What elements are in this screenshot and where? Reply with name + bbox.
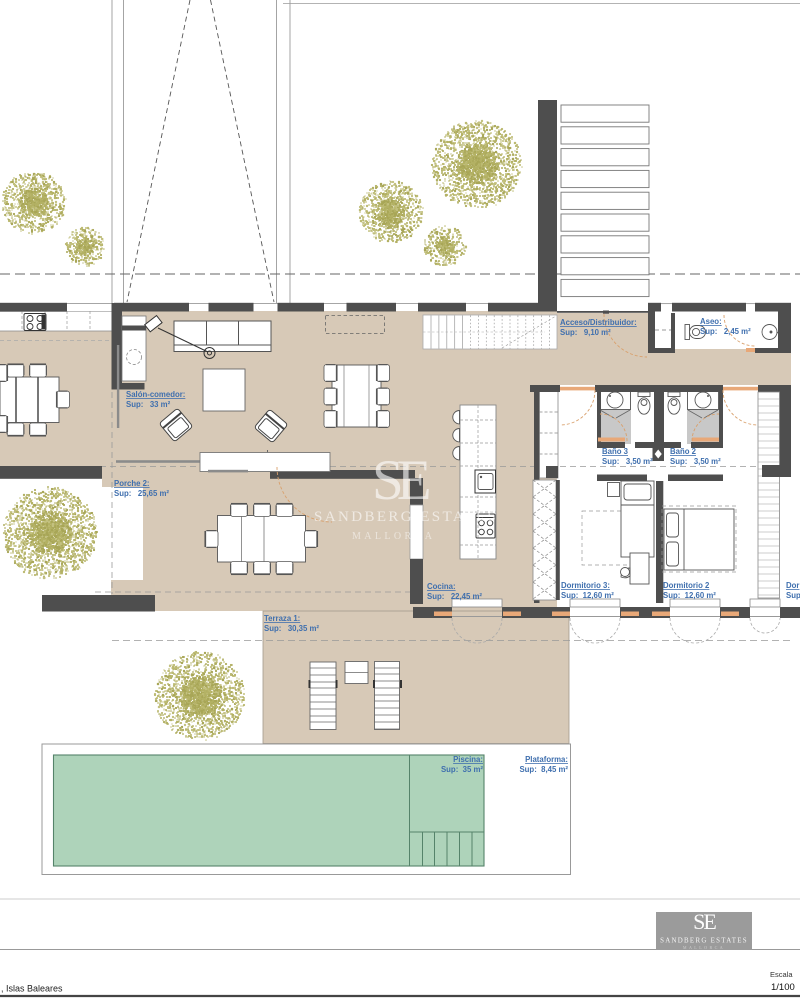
svg-text:SANDBERG ESTATES: SANDBERG ESTATES — [314, 509, 498, 525]
svg-text:Sup: 12,60 m²: Sup: 12,60 m² — [561, 591, 614, 600]
svg-text:Aseo:: Aseo: — [700, 317, 722, 326]
svg-text:Plataforma:: Plataforma: — [525, 755, 568, 764]
svg-text:Sup: Sup — [786, 591, 800, 600]
svg-text:, Islas Baleares: , Islas Baleares — [1, 984, 63, 994]
svg-text:Sup: 22,45 m²: Sup: 22,45 m² — [427, 592, 482, 601]
svg-text:Sup: 25,65 m²: Sup: 25,65 m² — [114, 489, 169, 498]
svg-text:Piscina:: Piscina: — [453, 755, 483, 764]
svg-text:Baño 2: Baño 2 — [670, 447, 697, 456]
svg-text:Sup: 2,45 m²: Sup: 2,45 m² — [700, 327, 751, 336]
svg-text:Sup: 30,35 m²: Sup: 30,35 m² — [264, 624, 319, 633]
svg-text:SANDBERG ESTATES: SANDBERG ESTATES — [660, 938, 748, 945]
svg-text:Sup: 12,60 m²: Sup: 12,60 m² — [663, 591, 716, 600]
svg-text:Acceso/Distribuidor:: Acceso/Distribuidor: — [560, 318, 637, 327]
svg-text:Salón-comedor:: Salón-comedor: — [126, 390, 185, 399]
svg-text:Dor: Dor — [786, 581, 799, 590]
svg-text:Dormitorio 3:: Dormitorio 3: — [561, 581, 610, 590]
svg-text:Sup: 33 m²: Sup: 33 m² — [126, 400, 171, 409]
svg-text:MALLORCA: MALLORCA — [683, 945, 725, 950]
svg-text:Escala: Escala — [770, 970, 793, 979]
svg-text:Sup: 3,50 m²: Sup: 3,50 m² — [602, 457, 653, 466]
svg-text:Dormitorio 2: Dormitorio 2 — [663, 581, 710, 590]
svg-text:Sup: 3,50 m²: Sup: 3,50 m² — [670, 457, 721, 466]
svg-text:MALLORCA: MALLORCA — [352, 531, 435, 542]
svg-text:Porche 2:: Porche 2: — [114, 479, 150, 488]
svg-text:Terraza 1:: Terraza 1: — [264, 614, 300, 623]
svg-text:Baño 3: Baño 3 — [602, 447, 629, 456]
svg-text:Sup: 8,45 m²: Sup: 8,45 m² — [519, 765, 568, 774]
svg-text:Sup: 9,10 m²: Sup: 9,10 m² — [560, 328, 611, 337]
svg-text:Sup: 35 m²: Sup: 35 m² — [441, 765, 483, 774]
svg-text:SE: SE — [372, 449, 429, 512]
svg-text:1/100: 1/100 — [771, 982, 795, 993]
svg-text:Cocina:: Cocina: — [427, 582, 456, 591]
svg-text:SE: SE — [693, 909, 716, 934]
